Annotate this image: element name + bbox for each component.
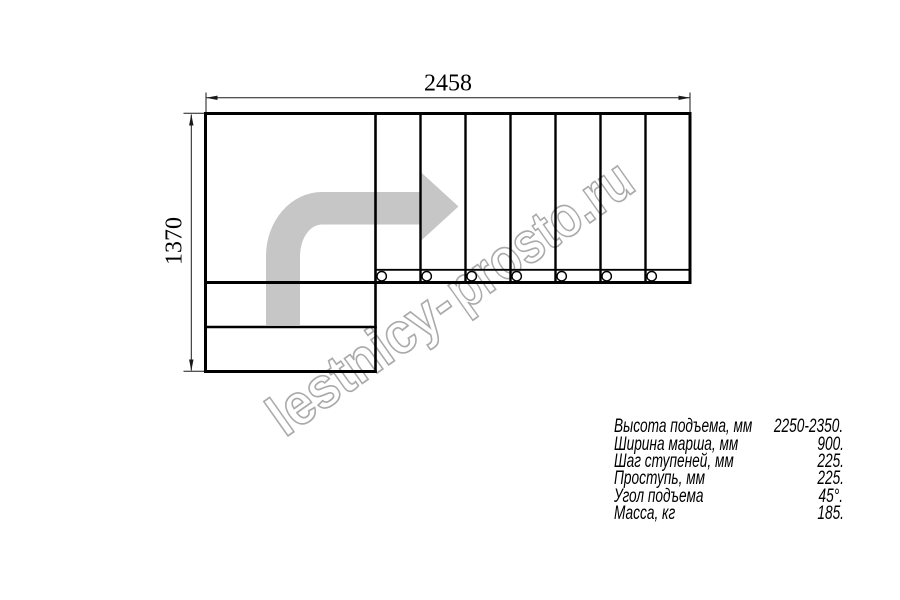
svg-text:1370: 1370	[162, 217, 188, 265]
svg-text:2458: 2458	[424, 71, 472, 97]
